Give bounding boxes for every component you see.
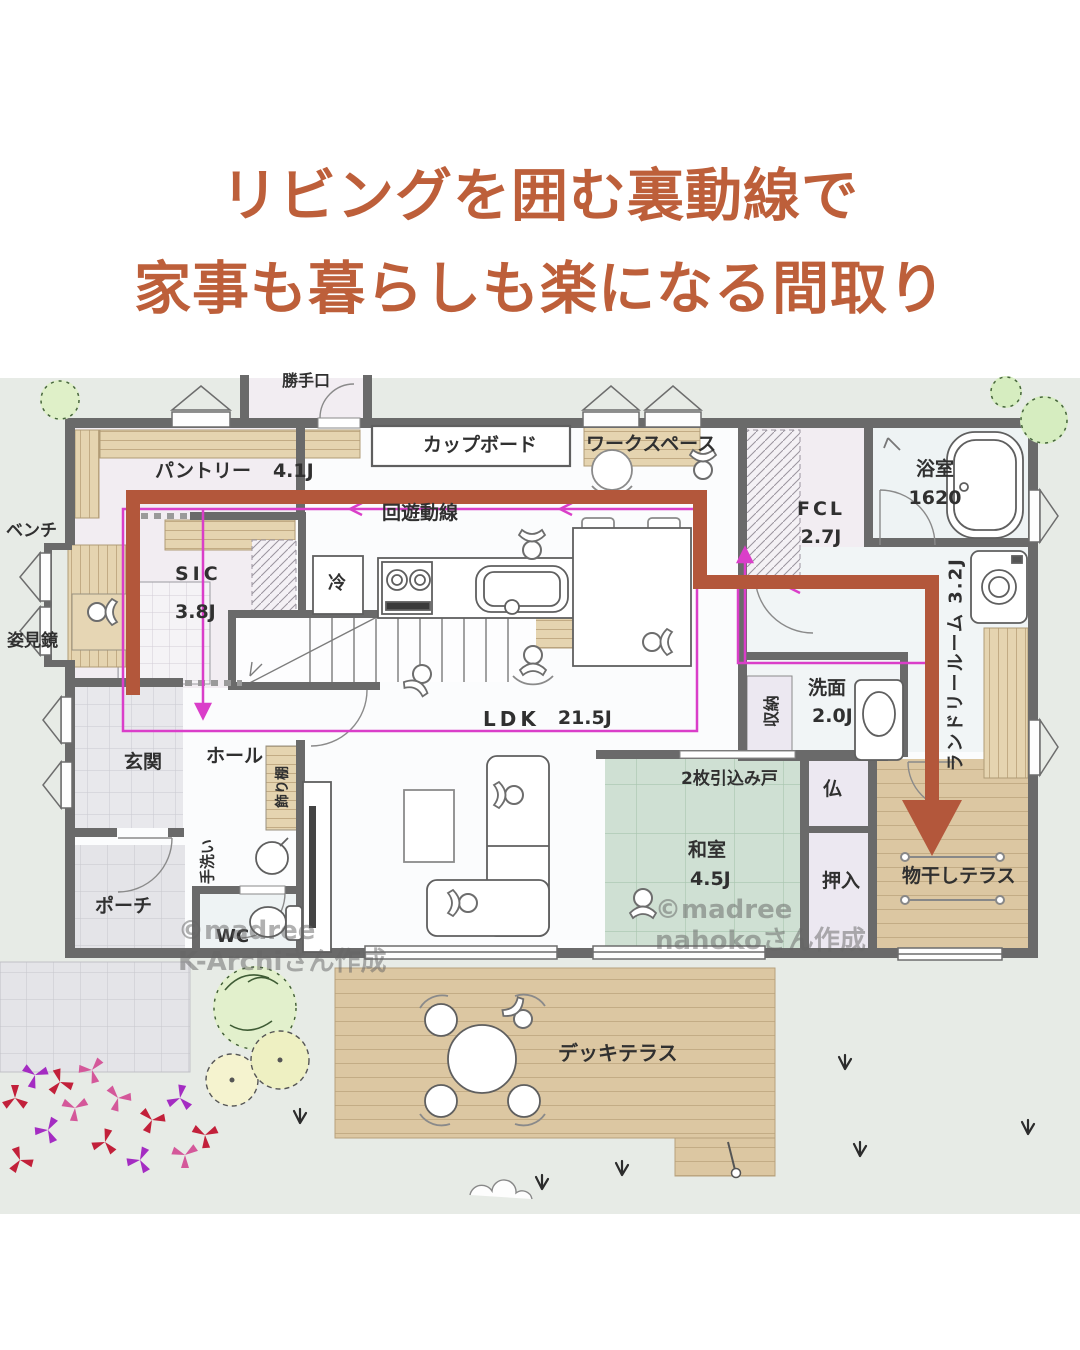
laundry-label: ランドリールーム 3.2J bbox=[947, 504, 968, 824]
stone-path bbox=[0, 962, 190, 1072]
bench-label: ベンチ bbox=[6, 522, 57, 542]
display-shelf-label: 飾り棚 bbox=[275, 742, 291, 832]
storage-label: 収納 bbox=[763, 671, 781, 751]
washroom-size: 2.0J bbox=[812, 706, 853, 728]
fcl-size: 2.7J bbox=[795, 527, 847, 549]
fridge-label: 冷 bbox=[328, 574, 346, 595]
sic-size: 3.8J bbox=[175, 602, 216, 624]
porch-label: ポーチ bbox=[95, 896, 152, 918]
stairs bbox=[236, 618, 537, 688]
hall-label: ホール bbox=[206, 746, 263, 768]
hand-wash-label: 手洗い bbox=[199, 822, 216, 902]
mirror-label: 姿見鏡 bbox=[7, 632, 58, 652]
deck-terrace-label: デッキテラス bbox=[558, 1042, 678, 1065]
butsudan-label: 仏 bbox=[823, 779, 842, 801]
floorplan-post: リビングを囲む裏動線で 家事も暮らしも楽になる間取り bbox=[0, 0, 1080, 1350]
watermark-right: ©madree nahokoさん作成 bbox=[655, 895, 866, 957]
workspace-label: ワークスペース bbox=[586, 434, 716, 456]
washitsu-size: 4.5J bbox=[690, 869, 731, 891]
cupboard-label: カップボード bbox=[423, 435, 537, 457]
sic-label: SIC bbox=[175, 564, 222, 586]
drying-terrace-label: 物干しテラス bbox=[902, 866, 1016, 888]
bathroom-label: 浴室 bbox=[900, 459, 970, 481]
genkan-label: 玄関 bbox=[124, 752, 162, 774]
fcl-label: FCL bbox=[795, 499, 847, 521]
ldk-label: LDK 21.5J bbox=[483, 708, 612, 731]
washroom-label: 洗面 bbox=[808, 678, 846, 700]
floorplan-graphic bbox=[0, 0, 1080, 1350]
sliding-door-label: 2枚引込み戸 bbox=[681, 770, 778, 790]
back-door-label: 勝手口 bbox=[282, 372, 330, 390]
watermark-left: ©madree K-Archiさん作成 bbox=[178, 916, 386, 978]
oshiire-label: 押入 bbox=[822, 871, 860, 893]
washitsu-label: 和室 bbox=[688, 840, 726, 862]
pantry-label: パントリー4.1J bbox=[155, 461, 314, 483]
circulation-label: 回遊動線 bbox=[382, 503, 458, 525]
